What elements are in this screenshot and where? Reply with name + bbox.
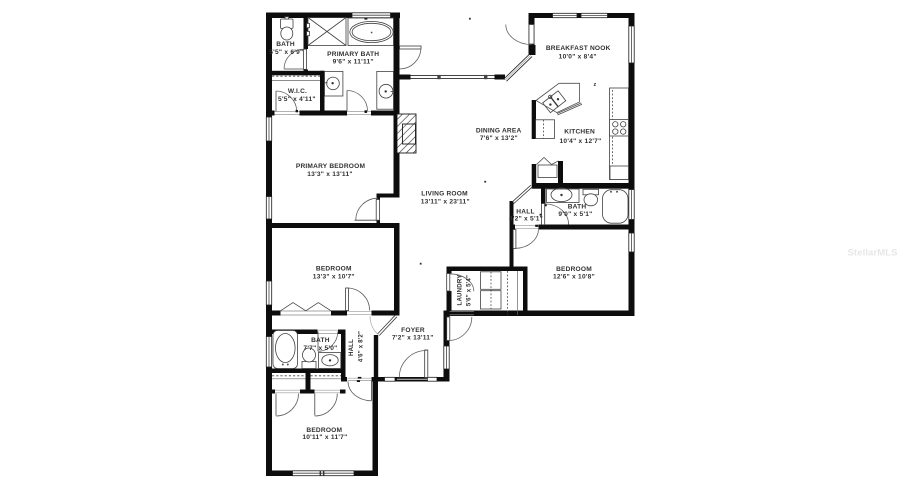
svg-text:5'5" x 4'11": 5'5" x 4'11" bbox=[278, 96, 316, 103]
svg-text:PRIMARY BEDROOM: PRIMARY BEDROOM bbox=[296, 163, 366, 170]
svg-text:4'6" x 8'2": 4'6" x 8'2" bbox=[358, 331, 365, 362]
svg-text:5'6" x 5'4": 5'6" x 5'4" bbox=[466, 275, 473, 306]
svg-text:7'7" x 5'0": 7'7" x 5'0" bbox=[303, 345, 337, 352]
svg-text:DINING AREA: DINING AREA bbox=[476, 128, 522, 135]
svg-text:7'6" x 13'2": 7'6" x 13'2" bbox=[480, 135, 518, 142]
svg-text:HALL: HALL bbox=[516, 208, 534, 215]
svg-text:BEDROOM: BEDROOM bbox=[556, 266, 592, 273]
svg-text:5'5" x 6'9": 5'5" x 6'9" bbox=[269, 49, 303, 56]
svg-text:13'3" x 10'7": 13'3" x 10'7" bbox=[313, 274, 355, 281]
svg-text:KITCHEN: KITCHEN bbox=[564, 129, 595, 136]
svg-text:BREAKFAST NOOK: BREAKFAST NOOK bbox=[546, 45, 611, 52]
svg-text:LIVING ROOM: LIVING ROOM bbox=[421, 191, 468, 198]
svg-text:z: z bbox=[594, 82, 597, 88]
svg-text:13'3" x 13'11": 13'3" x 13'11" bbox=[307, 171, 353, 178]
svg-text:13'11" x 23'11": 13'11" x 23'11" bbox=[421, 199, 470, 206]
svg-text:BATH: BATH bbox=[568, 203, 587, 210]
svg-text:BEDROOM: BEDROOM bbox=[306, 427, 342, 434]
svg-text:W.I.C.: W.I.C. bbox=[288, 88, 307, 95]
svg-text:10'11" x 11'7": 10'11" x 11'7" bbox=[302, 434, 347, 441]
svg-text:PRIMARY BATH: PRIMARY BATH bbox=[327, 51, 379, 58]
svg-text:10'4" x 12'7": 10'4" x 12'7" bbox=[560, 138, 602, 145]
svg-text:StellarMLS: StellarMLS bbox=[848, 248, 898, 259]
svg-text:7'2" x 13'11": 7'2" x 13'11" bbox=[392, 335, 434, 342]
svg-text:10'0" x 8'4": 10'0" x 8'4" bbox=[559, 53, 597, 60]
svg-text:BATH: BATH bbox=[311, 337, 330, 344]
svg-text:BATH: BATH bbox=[276, 41, 295, 48]
svg-text:9'6" x 11'11": 9'6" x 11'11" bbox=[333, 59, 374, 66]
svg-text:BEDROOM: BEDROOM bbox=[316, 265, 352, 272]
svg-text:12'6" x 10'8": 12'6" x 10'8" bbox=[553, 274, 595, 281]
svg-text:9'0" x 5'1": 9'0" x 5'1" bbox=[558, 211, 592, 218]
svg-text:3'2" x 5'1": 3'2" x 5'1" bbox=[509, 216, 543, 223]
svg-text:FOYER: FOYER bbox=[401, 327, 425, 334]
svg-text:HALL: HALL bbox=[348, 339, 355, 356]
svg-text:LAUNDRY: LAUNDRY bbox=[457, 275, 464, 306]
